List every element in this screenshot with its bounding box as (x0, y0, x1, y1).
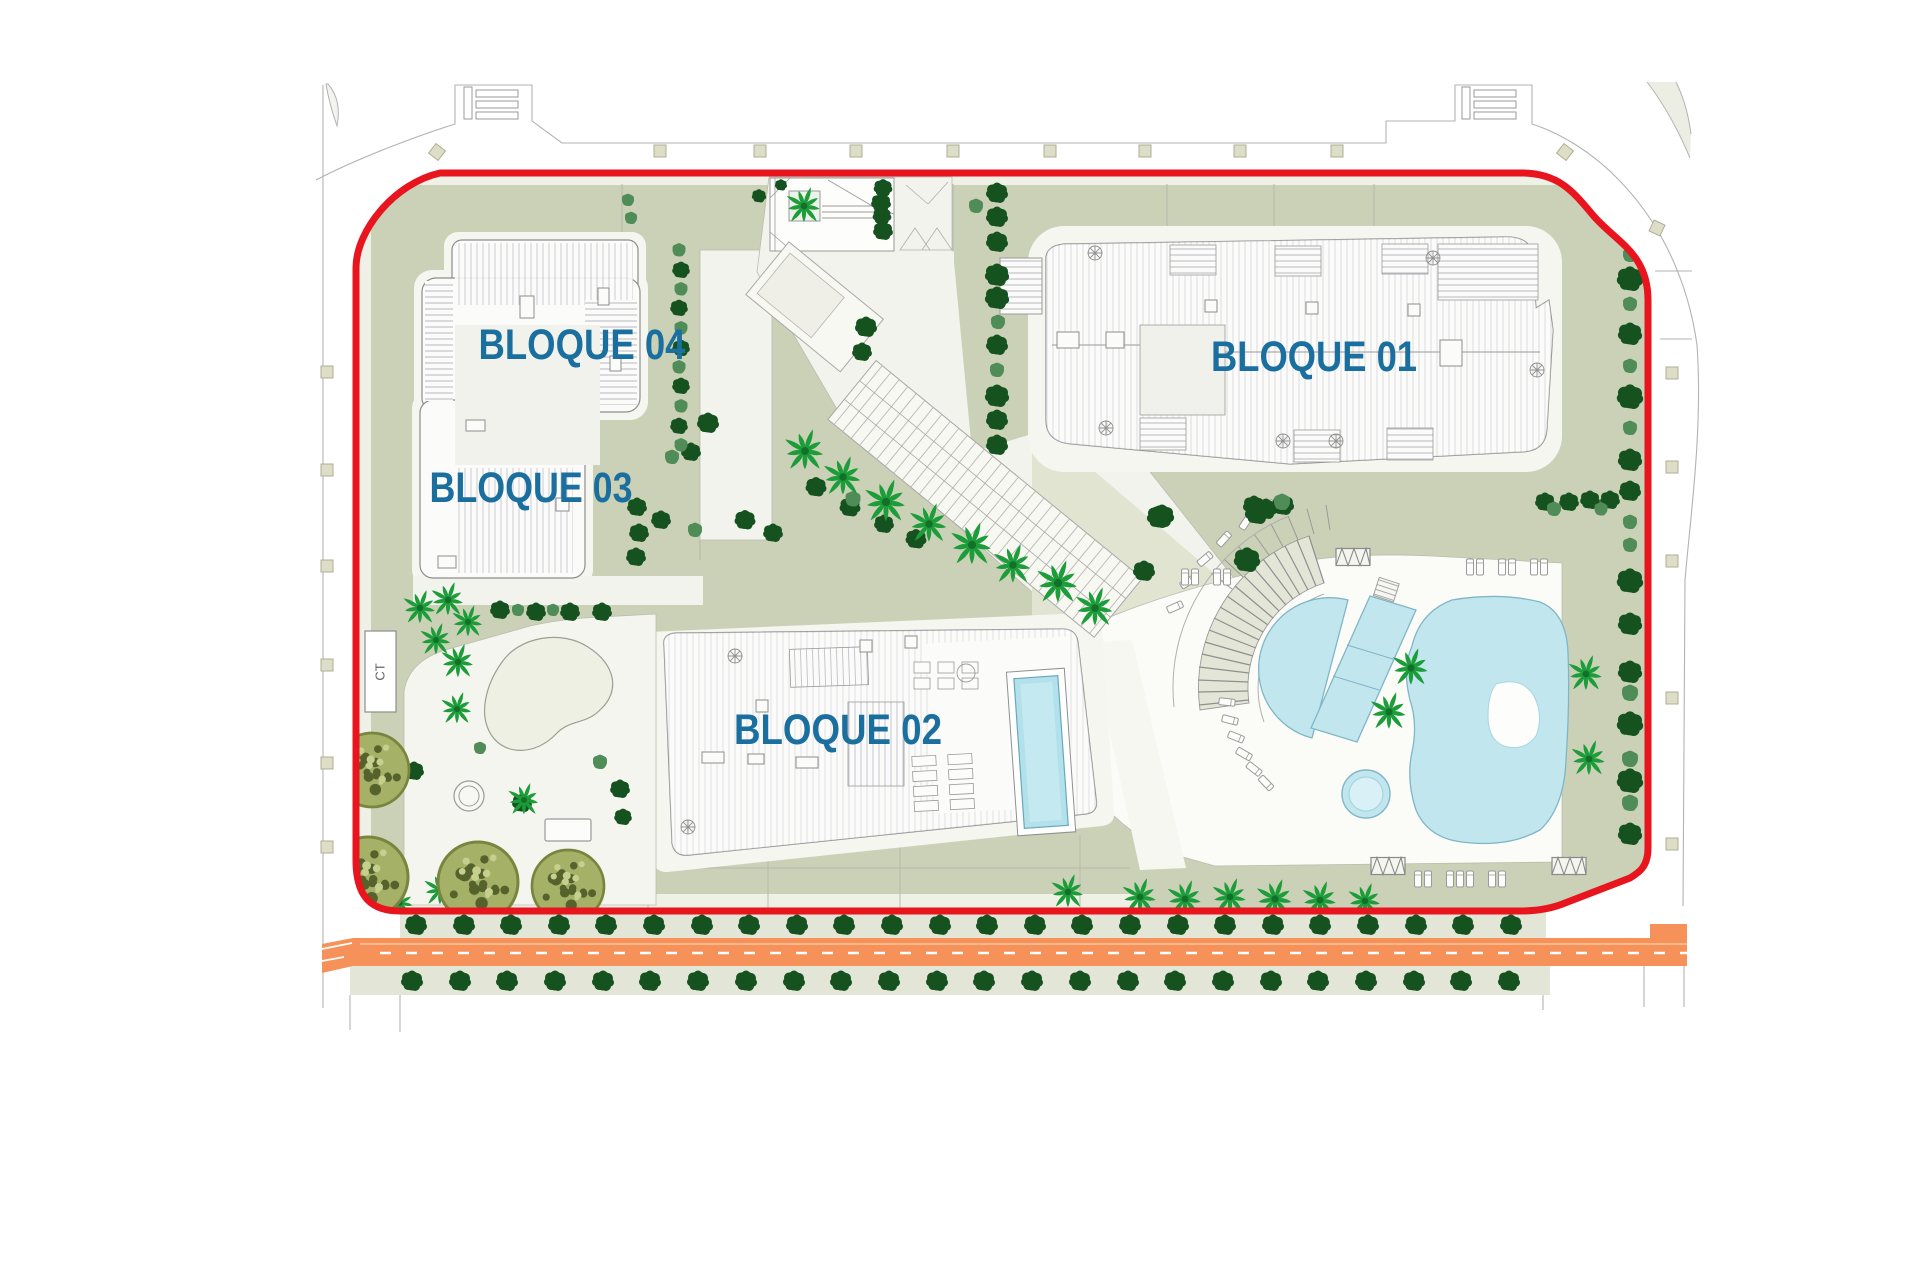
svg-text:CT: CT (373, 663, 388, 680)
svg-text:BLOQUE 02: BLOQUE 02 (734, 706, 942, 754)
svg-text:BLOQUE 01: BLOQUE 01 (1211, 333, 1417, 381)
svg-text:BLOQUE 03: BLOQUE 03 (430, 464, 633, 512)
svg-text:BLOQUE 04: BLOQUE 04 (479, 321, 686, 369)
